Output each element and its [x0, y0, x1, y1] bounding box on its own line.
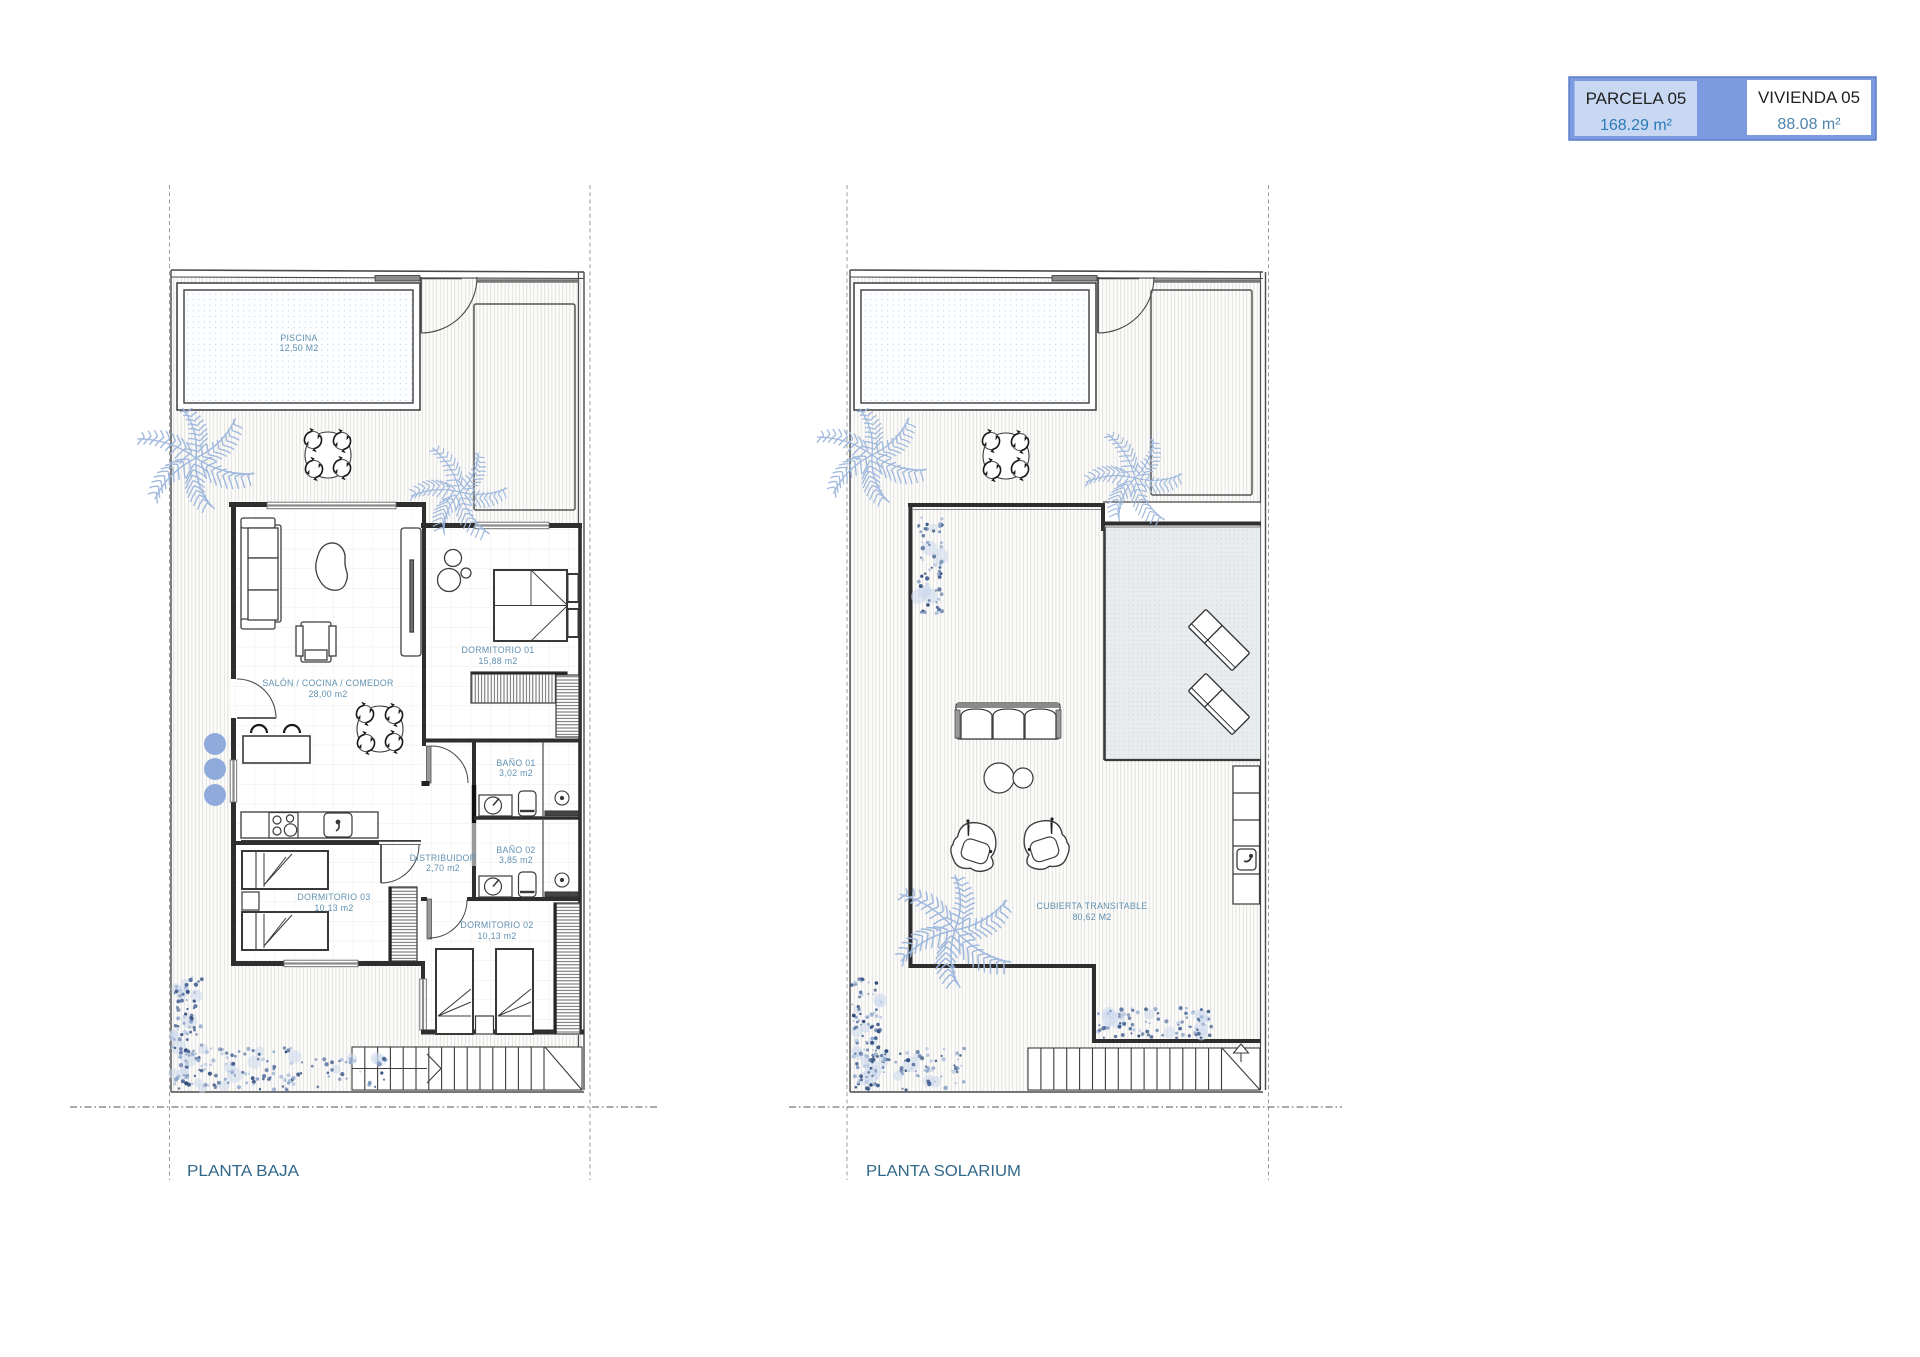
svg-text:DISTRIBUIDOR: DISTRIBUIDOR: [410, 853, 477, 863]
svg-text:10,13 m2: 10,13 m2: [477, 931, 516, 941]
svg-text:3,85 m2: 3,85 m2: [499, 855, 533, 865]
svg-text:10,13 m2: 10,13 m2: [314, 903, 353, 913]
svg-text:VIVIENDA 05: VIVIENDA 05: [1758, 88, 1860, 107]
svg-text:PISCINA: PISCINA: [280, 333, 317, 343]
svg-text:DORMITORIO 02: DORMITORIO 02: [460, 920, 533, 930]
svg-text:PLANTA SOLARIUM: PLANTA SOLARIUM: [866, 1163, 1021, 1180]
svg-text:15,88 m2: 15,88 m2: [478, 656, 517, 666]
svg-text:28,00 m2: 28,00 m2: [308, 689, 347, 699]
svg-text:12,50 M2: 12,50 M2: [279, 343, 318, 353]
svg-text:88.08 m²: 88.08 m²: [1777, 116, 1841, 133]
svg-text:BAÑO 01: BAÑO 01: [496, 758, 535, 768]
svg-text:PLANTA BAJA: PLANTA BAJA: [187, 1163, 300, 1180]
svg-text:2,70 m2: 2,70 m2: [426, 863, 460, 873]
svg-text:PARCELA 05: PARCELA 05: [1586, 89, 1687, 108]
svg-text:DORMITORIO 03: DORMITORIO 03: [297, 892, 370, 902]
svg-text:168.29 m²: 168.29 m²: [1600, 117, 1673, 134]
svg-text:CUBIERTA TRANSITABLE: CUBIERTA TRANSITABLE: [1037, 901, 1148, 911]
svg-text:BAÑO 02: BAÑO 02: [496, 845, 535, 855]
svg-text:3,02 m2: 3,02 m2: [499, 768, 533, 778]
svg-text:80,62 M2: 80,62 M2: [1072, 912, 1111, 922]
svg-text:DORMITORIO 01: DORMITORIO 01: [461, 645, 534, 655]
svg-text:SALÓN / COCINA / COMEDOR: SALÓN / COCINA / COMEDOR: [262, 678, 393, 688]
